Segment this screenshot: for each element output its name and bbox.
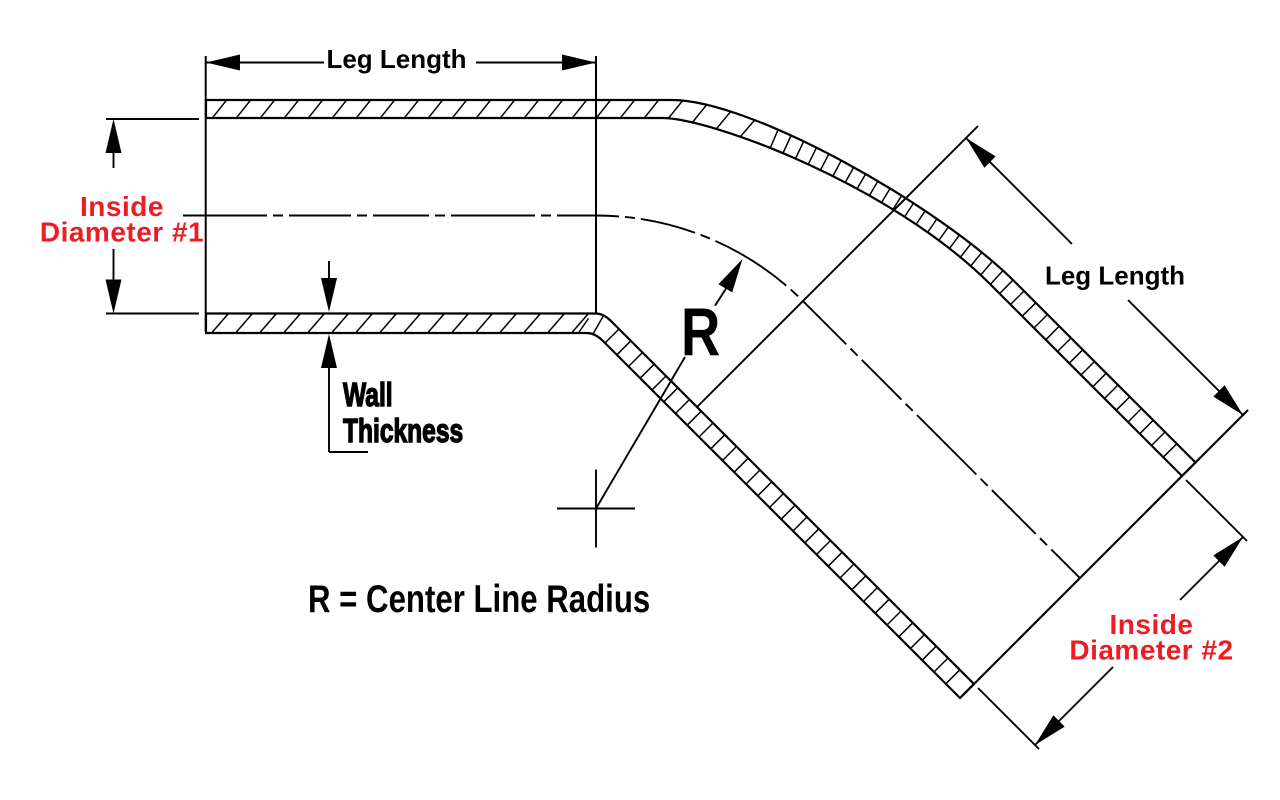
svg-text:Leg Length: Leg Length: [1045, 261, 1185, 291]
svg-text:Wall: Wall: [343, 378, 393, 414]
svg-text:R = Center Line Radius: R = Center Line Radius: [308, 578, 650, 621]
svg-text:Diameter #1: Diameter #1: [40, 217, 204, 248]
svg-text:Leg Length: Leg Length: [326, 44, 466, 74]
svg-text:R: R: [681, 294, 720, 370]
svg-text:Diameter #2: Diameter #2: [1069, 635, 1233, 666]
svg-text:Thickness: Thickness: [343, 414, 463, 450]
